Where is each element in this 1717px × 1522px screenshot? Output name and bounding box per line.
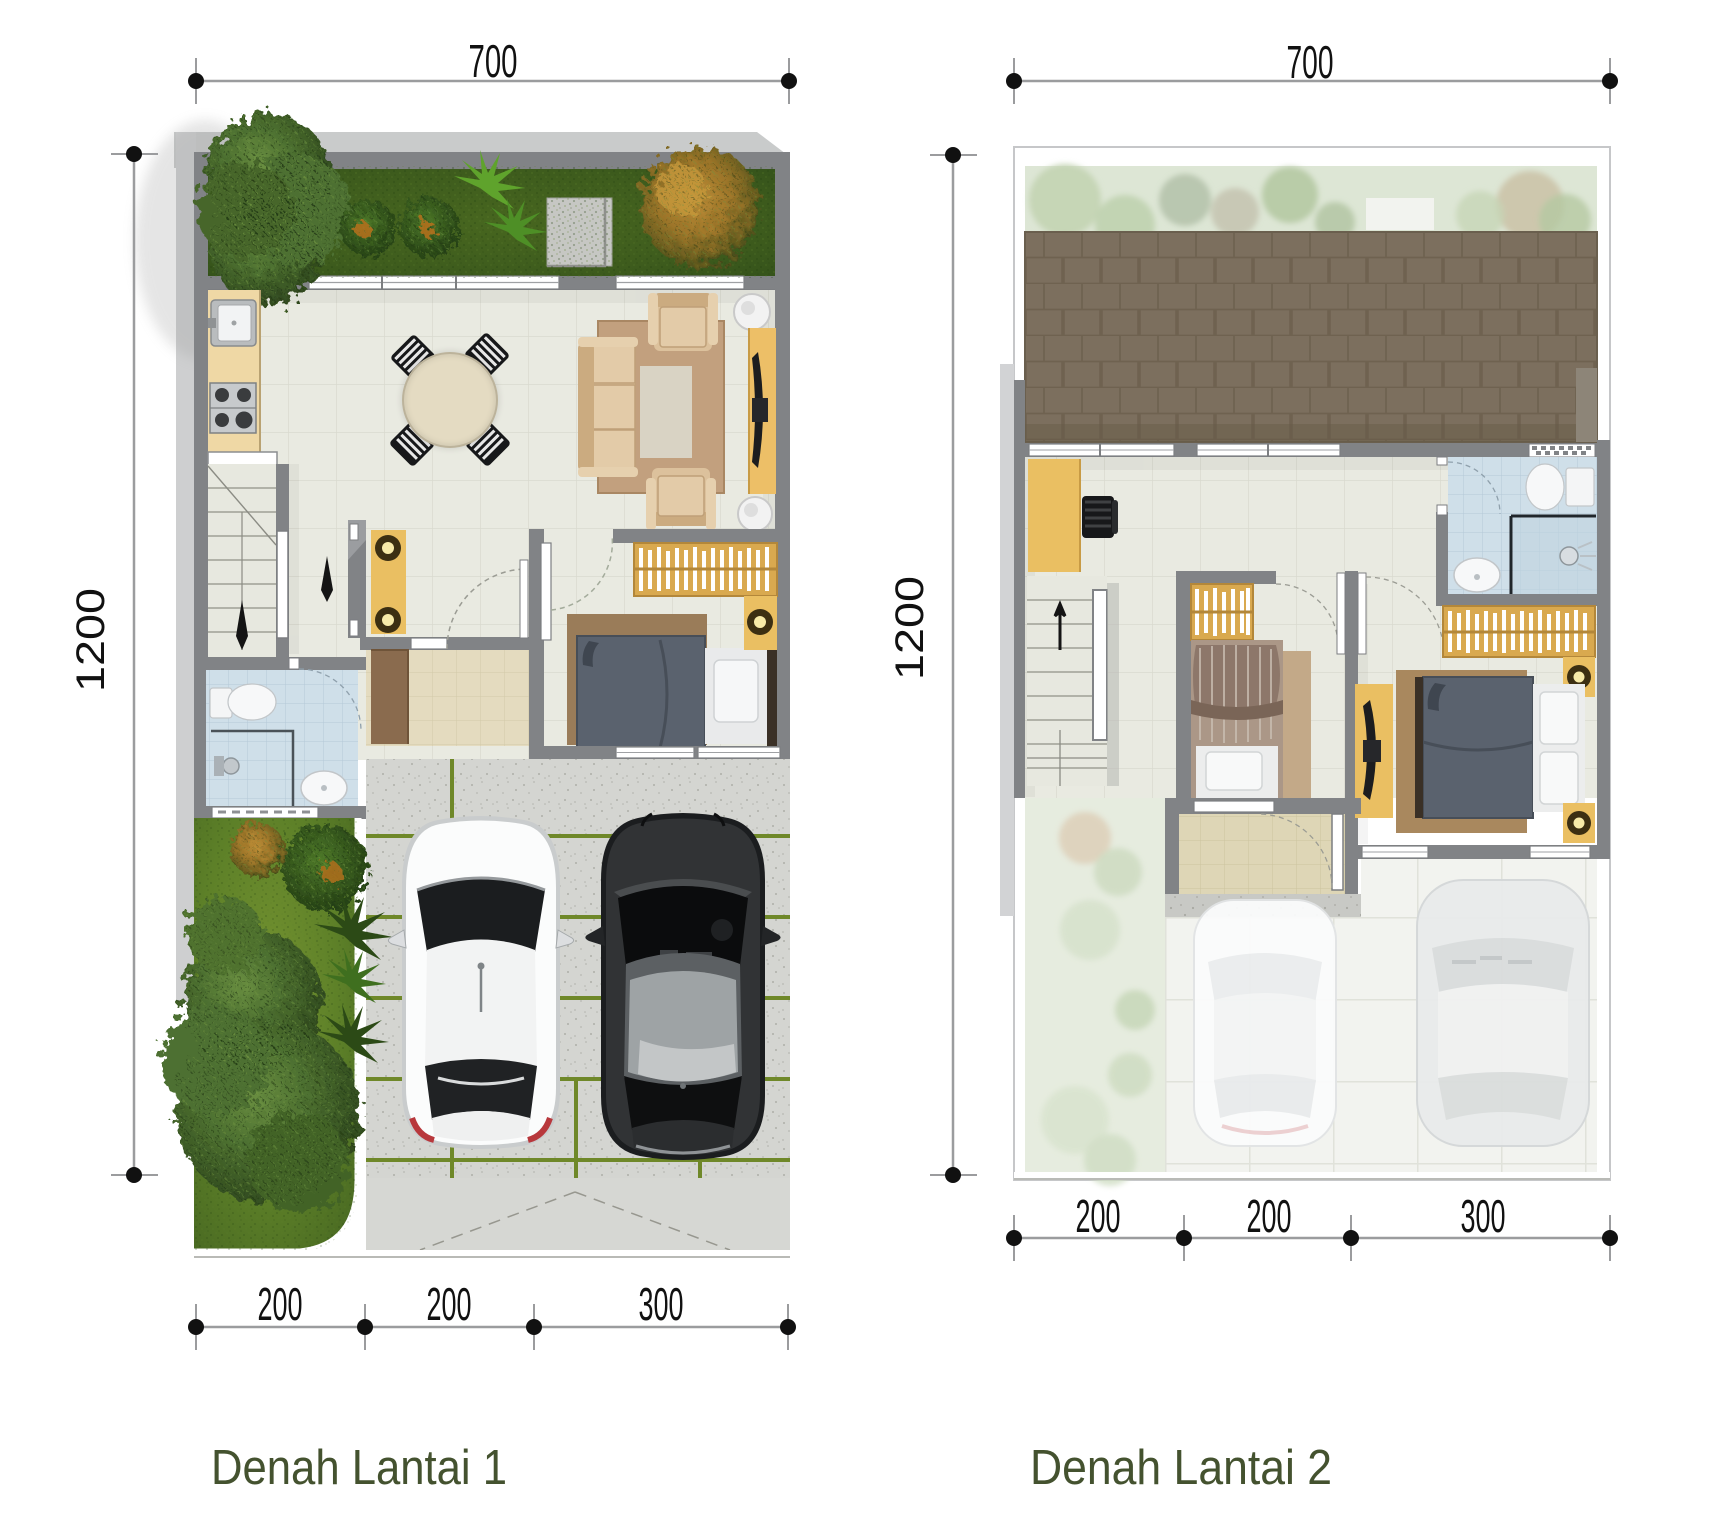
svg-text:300: 300 [639, 1278, 684, 1330]
svg-text:Denah Lantai 1: Denah Lantai 1 [211, 1441, 507, 1495]
svg-text:300: 300 [1461, 1190, 1506, 1242]
svg-text:200: 200 [258, 1278, 303, 1330]
svg-text:1200: 1200 [69, 588, 113, 692]
svg-text:Denah Lantai 2: Denah Lantai 2 [1030, 1441, 1332, 1495]
svg-text:700: 700 [1287, 36, 1334, 88]
svg-text:200: 200 [1247, 1190, 1292, 1242]
svg-text:200: 200 [427, 1278, 472, 1330]
svg-text:700: 700 [469, 35, 518, 87]
svg-text:1200: 1200 [888, 576, 932, 680]
svg-text:200: 200 [1076, 1190, 1121, 1242]
